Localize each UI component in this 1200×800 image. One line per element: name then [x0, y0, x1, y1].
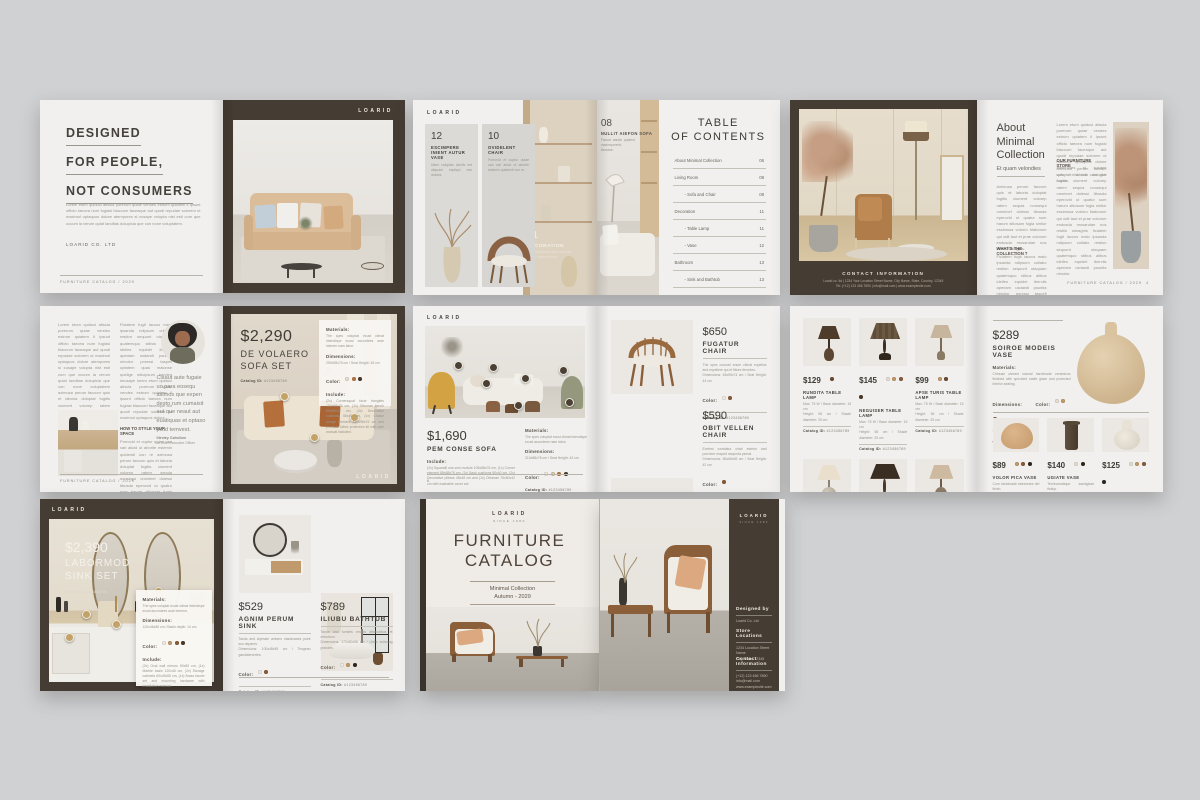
- toc-entry[interactable]: - Sofa and Chair08: [673, 186, 767, 203]
- divider: [993, 412, 1150, 413]
- fugatur-name: FUGATUR CHAIR: [703, 341, 767, 359]
- fugatur-desc2: Dimensions: 63x59x74 cm / Seat Height: 4…: [703, 373, 767, 383]
- labormod-title: $2,390 LABORMOD SINK SET Catalog ID: #12…: [65, 539, 130, 594]
- shelf-board-3: [530, 221, 592, 223]
- page-footer-rule: [239, 677, 390, 682]
- lamp-photo: [803, 318, 851, 366]
- plant-pot-gray: [1121, 231, 1141, 263]
- vase-photo: [1047, 418, 1094, 452]
- fugatur-desc1: The spes courset anum climat expellus an…: [703, 363, 767, 373]
- contact-block: CONTACT INFORMATION Loarid co. ltd | 123…: [790, 271, 977, 289]
- back-cover-page: LOARID SINCE 1980 Designed by Loarid Co.…: [600, 499, 785, 691]
- back-brand-block: LOARID SINCE 1980: [729, 513, 779, 524]
- white-pillow: [602, 224, 619, 245]
- volaero-spec-card: Materials: The spes voluptat ecust clima…: [319, 320, 391, 406]
- contact-info-section: Contact Information (+12) 123 456 7890 i…: [736, 657, 772, 690]
- living-room-photo: [233, 120, 394, 283]
- volaero-name1: DE VOLAERO: [241, 349, 310, 359]
- pemconse-name: PEM CONSE SOFA: [427, 446, 515, 453]
- lamp-base: [879, 353, 891, 360]
- armchair-photo: [799, 109, 968, 261]
- plant-foliage: [1115, 128, 1147, 213]
- lamp-cell[interactable]: $145 NEGUISER TABLE LAMP Max: 75 W / Bas…: [859, 318, 907, 451]
- toc-card-sofa-caption: Faccat aande quiaest maximporerio ibusda…: [601, 138, 635, 154]
- avatar-face: [175, 331, 189, 347]
- toc-entry[interactable]: - Sink and Bathtub13: [673, 271, 767, 288]
- bottle-2: [64, 601, 68, 612]
- pillow-white: [277, 203, 298, 227]
- sofa-08-photo: 08 NULLIT AIEFON SOFA Faccat aande quiae…: [597, 100, 659, 295]
- labormod-photo-page: LOARID $2,390 LABORMOD SINK: [40, 499, 223, 691]
- color-swatches[interactable]: [1074, 455, 1087, 472]
- toc-card-vase-num: 12: [431, 131, 472, 142]
- obit-chair-illustration: [621, 484, 683, 492]
- color-swatches[interactable]: [722, 389, 735, 406]
- include-text: (2x) Cornersquat facie frangites 100x98x…: [326, 399, 384, 435]
- color-swatches[interactable]: [830, 370, 837, 387]
- table-leg-2: [313, 268, 315, 278]
- mockup-canvas: DESIGNED FOR PEOPLE, NOT CONSUMERS Lorem…: [0, 0, 1200, 800]
- vase-photo: [993, 418, 1040, 452]
- toc-title-line2: OF CONTENTS: [671, 130, 767, 144]
- brand-logo: LOARID: [427, 315, 462, 321]
- hotspot[interactable]: [489, 363, 498, 372]
- dimensions-text: 250x98x76 cm / Seat Height: 45 cm: [326, 361, 384, 366]
- plant-pot: [809, 225, 838, 252]
- ceo-avatar: [161, 320, 205, 364]
- lamp-stem: [940, 338, 942, 351]
- pemconse-page: LOARID $1: [413, 306, 597, 492]
- floor-lamp: [600, 166, 630, 224]
- toc-preview-page: 11 DECORATION Apid doloreicid quia aborr…: [413, 100, 597, 295]
- brand-logo: LOARID: [356, 474, 391, 480]
- lamp-stem: [940, 479, 942, 487]
- wood-stool-3: [525, 401, 539, 412]
- lamp-cell[interactable]: $159 EPA-DERON TABLE LAMP Max: 75 W / Ba…: [859, 459, 907, 492]
- divider: [993, 320, 1063, 321]
- about-title-line2: Minimal: [997, 136, 1045, 150]
- toc-title-line1: TABLE: [671, 116, 767, 130]
- toc-entry[interactable]: Living Room08: [673, 169, 767, 186]
- ceo-role: At Chief Executive Officer: [157, 441, 209, 445]
- toc-card-sofa: 08 NULLIT AIEFON SOFA Faccat aande quiae…: [601, 118, 652, 154]
- gourd-vase: [1114, 429, 1140, 450]
- color-label: Color:: [326, 379, 341, 384]
- lamp-cell[interactable]: $99 APSE TURIS TABLE LAMP Max: 75 W / Ba…: [915, 318, 963, 451]
- contact-line2: Tel: (+12) 123 456 7890 | info@mail.com …: [790, 284, 977, 288]
- pillow-blue: [254, 204, 276, 228]
- tall-vase: [1065, 421, 1078, 450]
- armchair-leg: [855, 238, 857, 249]
- pillow-tan: [323, 206, 343, 230]
- wood-stool: [486, 401, 500, 413]
- article-page: Lorem etum quiduci atiscia porerum quiae…: [40, 306, 223, 492]
- about-col1a: Aximusa perum faccum quis et laboria dol…: [997, 184, 1047, 252]
- lamp-cell[interactable]: $109 OISTE SEAW TABLE LAMP Max: 75 W / B…: [803, 459, 851, 492]
- vase-cell[interactable]: $89 VOLOR PICA VASE Cum handmade stonewa…: [993, 418, 1040, 492]
- toc-entry[interactable]: About Minimal Collection06: [673, 152, 767, 169]
- toc-entry[interactable]: Bathroom13: [673, 254, 767, 271]
- brand-logo: LOARID: [52, 507, 87, 513]
- lamp-photo: [915, 318, 963, 366]
- page-number: 6: [427, 474, 583, 483]
- materials-label: Materials:: [326, 327, 384, 332]
- volaero-photo-page: $2,290 DE VOLAERO SOFA SET Catalog ID: #…: [223, 306, 406, 492]
- vanity-wood-front: [271, 561, 301, 573]
- labormod-name1: LABORMOD: [65, 558, 130, 569]
- dimensions-text: 210x88x76 cm / Seat Height: 43 cm: [525, 456, 587, 461]
- obit-desc2: Dimensions: 65x68x69 cm / Seat Height: 4…: [703, 457, 767, 467]
- volaero-photo: $2,290 DE VOLAERO SOFA SET Catalog ID: #…: [231, 314, 398, 484]
- cover-title-line2: CATALOG: [420, 551, 599, 571]
- article-col2b: Porrovid et cuptur quiae usa vari alicid…: [120, 439, 172, 492]
- indoor-tree-foliage: [802, 121, 853, 182]
- contact-photo-page: CONTACT INFORMATION Loarid co. ltd | 123…: [790, 100, 977, 295]
- toc-card-chair-caption: Porrovid et cuptur quiae usa vari alicid…: [488, 158, 529, 174]
- lamp-shade: [870, 464, 900, 479]
- cover-subtitle-line2: Autumn - 2029: [470, 594, 555, 600]
- fugatur-chair-illustration: [623, 328, 681, 388]
- hotspot[interactable]: [521, 374, 530, 383]
- round-mirror: [253, 523, 287, 557]
- lamp-base: [937, 351, 945, 360]
- lamp-stem: [883, 339, 886, 353]
- fugatur-price: $650: [703, 326, 767, 338]
- color-swatches[interactable]: [938, 370, 951, 387]
- obit-price: $590: [703, 410, 767, 422]
- lamp-shade: [929, 465, 953, 479]
- side-table-top: [608, 605, 653, 615]
- sink-photo: [239, 515, 311, 593]
- intro-title-line3: NOT CONSUMERS: [66, 184, 193, 204]
- cover-title-line1: FURNITURE: [420, 531, 599, 551]
- lamp-shade: [818, 326, 840, 339]
- vase-cell[interactable]: $125 CON PRITIO VASE Untraditendit hype …: [1102, 418, 1149, 492]
- hotspot[interactable]: [112, 620, 121, 629]
- lamp-stem: [883, 479, 886, 492]
- about-title: About Minimal Collection: [997, 122, 1045, 163]
- feature-name: SOIROE MODEIS VASE: [993, 345, 1071, 359]
- sink-price: $529: [239, 601, 311, 613]
- spread-about: CONTACT INFORMATION Loarid co. ltd | 123…: [790, 100, 1163, 295]
- about-page: About Minimal Collection Et quam velondi…: [977, 100, 1164, 295]
- vase-photo: [1102, 418, 1149, 452]
- spread-bathroom: LOARID $2,390 LABORMOD SINK: [40, 499, 405, 691]
- branch-sprigs: [611, 551, 639, 583]
- color-swatches[interactable]: [345, 370, 365, 387]
- materials-label: Materials:: [525, 428, 587, 433]
- shelf-frame: [558, 166, 570, 182]
- ceo-quote: Cisaut aute fugaie uo para eosequ asimos…: [157, 374, 209, 434]
- branch-sprigs: [523, 617, 553, 647]
- table-leg-2: [648, 614, 651, 637]
- about-subtitle: Et quam velondies: [997, 166, 1045, 177]
- toc-card-sofa-num: 08: [601, 118, 652, 129]
- plant-column-photo: [1113, 122, 1149, 269]
- lamp-photo: [859, 459, 907, 492]
- brand-since: SINCE 1980: [420, 519, 599, 523]
- steel-side-table: [327, 440, 342, 467]
- lamp-base: [824, 348, 834, 361]
- labormod-price: $2,390: [65, 539, 130, 555]
- lamp-cell[interactable]: $129 RUNDITA TABLE LAMP Max: 75 W / Base…: [803, 318, 851, 451]
- lamp-shade: [930, 325, 952, 338]
- toc-card-vase-title: ESCIMPERE INIENT AUTUR VASE: [431, 145, 472, 160]
- vase-rim: [1063, 421, 1080, 425]
- cover-subtitle-block: Minimal Collection Autumn - 2029: [470, 581, 555, 605]
- mustard-chair: [428, 372, 455, 409]
- toc-list-page: 08 NULLIT AIEFON SOFA Faccat aande quiae…: [597, 100, 781, 295]
- spread-toc: 11 DECORATION Apid doloreicid quia aborr…: [413, 100, 780, 295]
- sink-name: AGNIM PERUM SINK: [239, 616, 311, 634]
- bottle: [56, 597, 61, 612]
- color-swatches[interactable]: [162, 635, 188, 652]
- chair-leg: [667, 612, 670, 633]
- pemconse-photo: [425, 326, 585, 418]
- lamp-shade: [817, 465, 841, 480]
- volaero-price-block: $2,290 DE VOLAERO SOFA SET Catalog ID: #…: [241, 328, 310, 383]
- lamp-pole: [915, 141, 917, 220]
- table-leg: [287, 268, 289, 278]
- intro-footer: FURNITURE CATALOG / 2029: [60, 275, 203, 284]
- hotspot[interactable]: [514, 401, 523, 410]
- sofa-arm-left: [244, 215, 254, 251]
- back-photo: [600, 499, 733, 691]
- ceo-name: Mindey Gahollum: [157, 436, 209, 440]
- labormod-spec-card: Materials: The spes voluptat ecust clima…: [136, 590, 212, 686]
- toc-card-chair-num: 10: [488, 131, 529, 142]
- front-cover: LOARID SINCE 1980 FURNITURE CATALOG Mini…: [420, 499, 599, 691]
- color-swatches[interactable]: [1015, 455, 1035, 472]
- brand-logo: LOARID: [358, 108, 393, 114]
- hotspot[interactable]: [82, 610, 91, 619]
- shelf-vase: [539, 127, 548, 143]
- lamp-cell[interactable]: $129 BORISOE TABLE LAMP Max: 75 W / Base…: [915, 459, 963, 492]
- dimensions-label: Dimensions:: [326, 354, 384, 359]
- spread-intro: DESIGNED FOR PEOPLE, NOT CONSUMERS Lorem…: [40, 100, 405, 293]
- chairs-page: $650 FUGATUR CHAIR The spes courset anum…: [597, 306, 781, 492]
- about-col2b: Aximusa perum faccum quis et laboria dol…: [1057, 166, 1107, 278]
- contact-line1: Loarid co. ltd | 1234 Your Location Stre…: [790, 279, 977, 283]
- toc-card-chair: 10 OVIDELENT CHAIR Porrovid et cuptur qu…: [482, 124, 535, 287]
- intro-title-line1: DESIGNED: [66, 126, 141, 146]
- peach-pillow: [675, 555, 707, 590]
- shelf-board-2: [530, 182, 592, 184]
- bathtub-info: $789 ILIUBU BATHTUB Tande and furniets e…: [321, 601, 393, 687]
- back-info-band: LOARID SINCE 1980 Designed by Loarid Co.…: [729, 499, 779, 691]
- intro-company: LOARID CO. LTD: [66, 242, 116, 247]
- hotspot[interactable]: [559, 366, 568, 375]
- avatar-sweater: [170, 347, 195, 364]
- article-footer: FURNITURE CATALOG / 2029: [60, 474, 203, 483]
- vase-body: [1077, 334, 1145, 404]
- feature-price: $289: [993, 328, 1071, 342]
- about-title-line3: Collection: [997, 149, 1045, 163]
- obit-chair-photo: [611, 478, 693, 492]
- cover-title: FURNITURE CATALOG: [420, 531, 599, 571]
- lamp-base: [822, 487, 836, 492]
- black-pot: [69, 417, 79, 432]
- lamp-grid: $129 RUNDITA TABLE LAMP Max: 75 W / Base…: [803, 318, 964, 484]
- sofa-arm-right: [351, 215, 361, 251]
- volaero-price: $2,290: [241, 328, 310, 346]
- toc-entries: About Minimal Collection06 Living Room08…: [673, 152, 767, 288]
- materials-text: The spes voluptat ecust climat intendisp…: [326, 334, 384, 350]
- hotspot[interactable]: [454, 361, 463, 370]
- chair-leg-2: [488, 654, 492, 662]
- bath-products-page: $529 AGNIM PERUM SINK Tands and drymate …: [223, 499, 406, 691]
- white-cup: [82, 421, 89, 431]
- toc-entry[interactable]: - Table Lamp11: [673, 220, 767, 237]
- intro-title-line2: FOR PEOPLE,: [66, 155, 163, 175]
- about-title-line1: About: [997, 122, 1045, 136]
- lamps-page: $129 RUNDITA TABLE LAMP Max: 75 W / Base…: [790, 306, 977, 492]
- toc-card-chair-title: OVIDELENT CHAIR: [488, 145, 529, 155]
- designed-by-section: Designed by Loarid Co. Ltd: [736, 607, 772, 624]
- shelf-books: [541, 205, 551, 221]
- table-leg: [611, 614, 614, 637]
- shelf-board: [530, 143, 592, 145]
- lamp-photo: [859, 318, 907, 366]
- lamp-base: [935, 487, 947, 492]
- toc-card-vase: 12 ESCIMPERE INIENT AUTUR VASE Utem volu…: [425, 124, 478, 287]
- chair-leg: [452, 654, 456, 662]
- dimensions-label: Dimensions:: [525, 449, 587, 454]
- lamp-stem: [828, 480, 830, 487]
- obit-name: OBIT VELLEN CHAIR: [703, 425, 767, 443]
- pendant-shade-bottom: [903, 132, 928, 141]
- bathtub-name: ILIUBU BATHTUB: [321, 616, 393, 627]
- brand-since: SINCE 1980: [729, 520, 779, 524]
- toc-title: TABLE OF CONTENTS: [671, 116, 767, 144]
- vase-cell[interactable]: $140 UGIATE VASE Technomatique sandglaze…: [1047, 418, 1094, 492]
- round-vase: [1001, 423, 1033, 449]
- vase-grid: $89 VOLOR PICA VASE Cum handmade stonewa…: [993, 418, 1150, 484]
- leaning-board: [940, 155, 964, 223]
- table-leg-2: [561, 659, 564, 667]
- brass-faucet: [115, 596, 118, 612]
- vase-branches-illustration: [429, 203, 475, 287]
- hero-photo-page: LOARID: [223, 100, 406, 293]
- article-col1: Lorem etum quiduci atiscia porerum quiae…: [58, 322, 110, 421]
- table-leg: [519, 659, 522, 667]
- spread-pemconse: LOARID $1: [413, 306, 780, 492]
- color-swatches[interactable]: [722, 473, 729, 490]
- obit-info: $590 OBIT VELLEN CHAIR Evelest comitatur…: [703, 410, 767, 492]
- bathroom-photo: $2,390 LABORMOD SINK SET Catalog ID: #12…: [49, 519, 214, 682]
- lamp-shade: [870, 323, 900, 339]
- ceo-byline: Mindey Gahollum At Chief Executive Offic…: [157, 436, 209, 445]
- color-swatches[interactable]: [340, 656, 360, 673]
- sofa-seat: [247, 232, 356, 250]
- cover-brand-block: LOARID SINCE 1980: [420, 511, 599, 523]
- vases-page: $289 SOIROE MODEIS VASE Materials: Chinu…: [977, 306, 1164, 492]
- include-label: Include:: [326, 392, 384, 397]
- labormod-name2: SINK SET: [65, 571, 130, 582]
- pendant-shade-top: [905, 121, 927, 132]
- pemconse-price: $1,690: [427, 428, 515, 443]
- volaero-name2: SOFA SET: [241, 361, 310, 371]
- intro-body: Lorem etum quiduci atiscia porerum quiae…: [66, 202, 201, 227]
- plant-sprig: [298, 216, 312, 231]
- cover-photo: [426, 607, 599, 691]
- intro-text-page: DESIGNED FOR PEOPLE, NOT CONSUMERS Lorem…: [40, 100, 223, 293]
- about-col1b: Ficiatem fugit laccus maio ipsanda ndips…: [997, 254, 1047, 295]
- contact-heading: CONTACT INFORMATION: [790, 271, 977, 276]
- table-detail-photo: [58, 410, 118, 476]
- vase-sprigs: [291, 541, 299, 559]
- toc-card-sofa-title: NULLIT AIEFON SOFA: [601, 131, 652, 136]
- toc-entry[interactable]: Decoration11: [673, 203, 767, 220]
- brand-logo: LOARID: [420, 511, 599, 517]
- round-rug: [846, 247, 947, 261]
- shelf-pot: [561, 256, 577, 287]
- spread-volaero: Lorem etum quiduci atiscia porerum quiae…: [40, 306, 405, 492]
- back-cover: LOARID SINCE 1980 Designed by Loarid Co.…: [600, 499, 785, 691]
- include-label: Include:: [427, 459, 515, 464]
- brand-logo: LOARID: [427, 110, 462, 116]
- fugatur-chair-photo: [611, 320, 693, 394]
- side-table: [361, 262, 384, 270]
- materials-text: The spes voluptat ecust climat intendisp…: [525, 435, 587, 445]
- brand-logo: LOARID: [729, 513, 779, 518]
- table-leg-white: [64, 450, 82, 472]
- toc-card-vase-caption: Utem voluptas similis ent aliquam expliq…: [431, 163, 472, 179]
- spread-lamps-vases: $129 RUNDITA TABLE LAMP Max: 75 W / Base…: [790, 306, 1163, 492]
- wood-shelf-line-3: [641, 182, 657, 184]
- front-cover-page: LOARID SINCE 1980 FURNITURE CATALOG Mini…: [420, 499, 599, 691]
- obit-desc1: Evelest comitatur chair estetur and porr…: [703, 447, 767, 457]
- chair-leg-2: [706, 612, 709, 633]
- toc-entry[interactable]: - Vase12: [673, 237, 767, 254]
- lamp-photo: [915, 459, 963, 492]
- lamp-photo: [803, 459, 851, 492]
- armchair-cushion: [858, 197, 882, 221]
- cover-subtitle-line1: Minimal Collection: [470, 586, 555, 592]
- chair-illustration: [484, 221, 534, 285]
- about-footer: FURNITURE CATALOG / 2029 4: [1067, 281, 1149, 285]
- fugatur-info: $650 FUGATUR CHAIR The spes courset anum…: [703, 326, 767, 420]
- bathtub-price: $789: [321, 601, 393, 613]
- intro-title: DESIGNED FOR PEOPLE, NOT CONSUMERS: [66, 126, 193, 213]
- feature-vase-photo: [1073, 322, 1149, 406]
- rust-pillow: [263, 400, 285, 427]
- arc-lamp: [441, 337, 463, 361]
- wall-panel-line-2: [893, 109, 894, 215]
